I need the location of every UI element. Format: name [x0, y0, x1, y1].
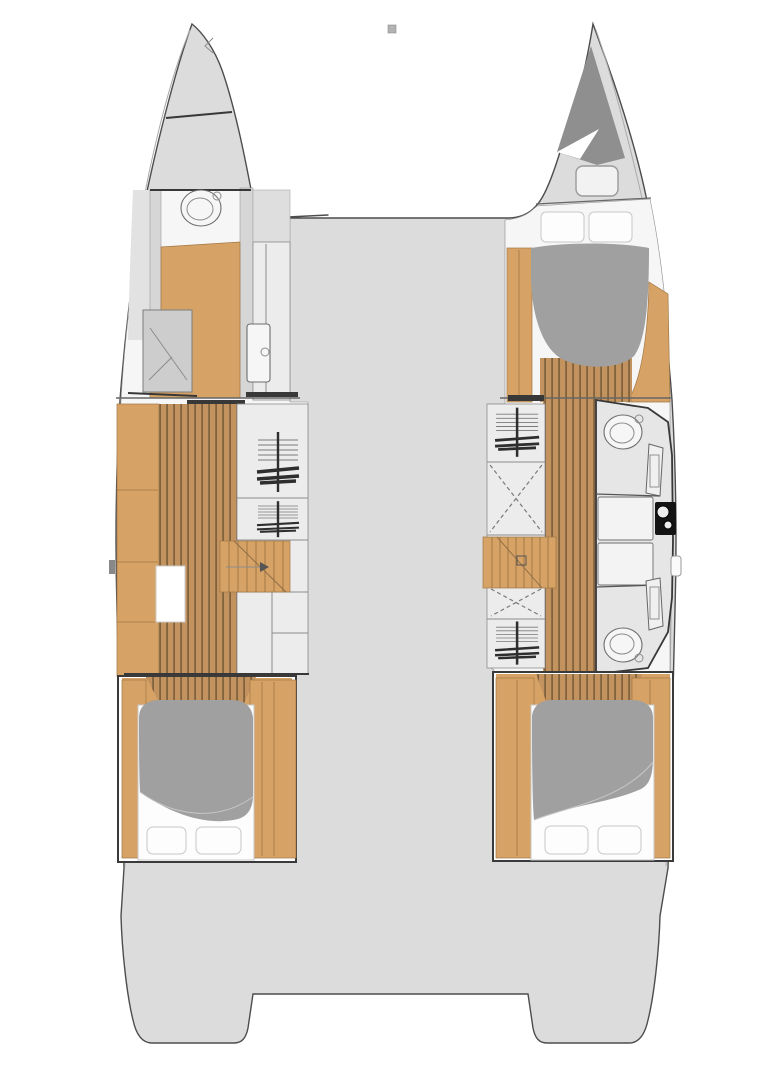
pillow — [545, 826, 588, 854]
pillow — [598, 826, 641, 854]
deck-hatch-icon — [576, 166, 618, 196]
left-main-cabin — [117, 404, 308, 676]
shower-icon — [143, 310, 192, 392]
right-midships — [483, 402, 600, 688]
shower-panel — [646, 444, 663, 496]
sink-unit-icon — [655, 502, 676, 535]
right-bathroom-module — [596, 400, 681, 674]
vanity-counter — [598, 497, 653, 540]
side-shelf-port — [496, 678, 534, 858]
pillow — [147, 827, 186, 854]
berth-infill-panel — [156, 566, 185, 622]
bathroom-counter-upper — [253, 190, 290, 242]
hull-side-fitting — [109, 560, 115, 574]
side-shelf-port — [507, 248, 532, 402]
companionway-step — [508, 395, 544, 401]
pillow — [196, 827, 241, 854]
stairs-left-hull — [220, 541, 290, 592]
pillow — [541, 212, 584, 242]
stairs-right-hull — [483, 537, 556, 588]
floorplan-drawing — [0, 0, 771, 1080]
walkway-planks — [158, 404, 245, 676]
vanity-counter — [598, 543, 653, 585]
mast-fitting-icon — [388, 25, 396, 33]
left-aft-cabin — [118, 676, 296, 862]
companionway-step-side — [246, 392, 298, 397]
door-panel — [247, 324, 270, 382]
catamaran-floorplan-canvas — [0, 0, 771, 1080]
bathroom-wall-left — [150, 190, 161, 318]
left-cabinet-column — [117, 404, 159, 676]
side-shelf-starboard — [250, 680, 296, 858]
hull-side-step — [671, 556, 681, 576]
pillow — [589, 212, 632, 242]
right-aft-cabin — [493, 672, 673, 861]
shower-panel — [646, 578, 663, 630]
right-hull — [483, 46, 681, 861]
